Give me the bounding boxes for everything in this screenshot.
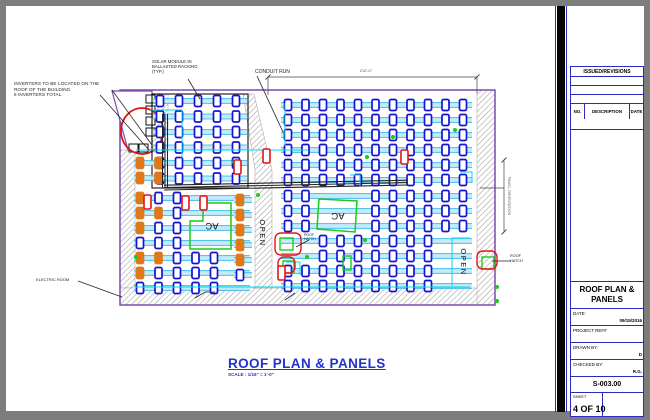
checked-by-row: CHECKED BY: R.G.	[571, 360, 643, 377]
drawn-by-value: D	[639, 352, 642, 357]
drawing-title: ROOF PLAN & PANELS	[228, 356, 398, 371]
open-area-label-2: OPEN	[458, 242, 468, 282]
project-ref-label: PROJECT REF#	[573, 328, 607, 333]
checked-by-label: CHECKED BY:	[573, 362, 603, 367]
sheet-fold-bar	[557, 6, 565, 412]
checked-by-value: R.G.	[633, 369, 642, 374]
col-no: NO.	[571, 104, 585, 119]
roof-hatch-label-right: ROOF HATCH	[510, 254, 523, 263]
sheet-count: 4 OF 10	[573, 404, 606, 414]
sheet-label: SHEET	[573, 394, 586, 399]
title-block: ISSUED/REVISIONS NO. DESCRIPTION DATE RO…	[570, 6, 644, 412]
ac-unit-label-2: AC	[323, 209, 353, 221]
revisions-header: ISSUED/REVISIONS	[571, 67, 643, 77]
open-area-label-1: OPEN	[257, 213, 267, 253]
drawn-by-row: DRAWN BY: D	[571, 343, 643, 360]
revisions-column-headers: NO. DESCRIPTION DATE	[571, 104, 643, 119]
revisions-table: ISSUED/REVISIONS NO. DESCRIPTION DATE	[570, 66, 644, 130]
col-date: DATE	[630, 104, 643, 119]
sheet-number: S-003.00	[571, 377, 643, 393]
drawing-scale: SCALE : 1/16" = 1'-0"	[228, 372, 398, 377]
ac-unit-label-1: AC	[197, 219, 227, 231]
title-block-spacer	[570, 130, 644, 281]
revision-row	[571, 86, 643, 95]
conduit-run-label: CONDUIT RUN	[255, 69, 290, 75]
col-description: DESCRIPTION	[585, 104, 630, 119]
revision-row	[571, 95, 643, 104]
right-dimension-text: PANEL ORIENTATION	[503, 166, 511, 226]
border-line	[566, 6, 567, 412]
date-label: DATE:	[573, 311, 586, 316]
sheet-number-row: S-003.00	[571, 377, 643, 393]
date-value: 09/15/2016	[619, 318, 642, 323]
drawn-by-label: DRAWN BY:	[573, 345, 598, 350]
roof-hatch-label-center: ROOF HATCH	[304, 233, 316, 241]
project-ref-row: PROJECT REF#	[571, 326, 643, 343]
electric-room-label: ELECTRIC ROOM	[36, 277, 69, 282]
sheet-count-row: SHEET 4 OF 10	[571, 393, 643, 416]
border-line	[555, 6, 556, 412]
screenshot-frame: INVERTERS TO BE LOCATED ON THE ROOF OF T…	[0, 0, 650, 420]
title-block-info: ROOF PLAN & PANELS DATE: 09/15/2016 PROJ…	[570, 281, 644, 417]
date-row: DATE: 09/15/2016	[571, 309, 643, 326]
sheet-title-line2: PANELS	[571, 295, 643, 305]
panel-arrays	[134, 96, 472, 294]
solar-module-note: SOLAR MODULE IN BALLASTED RACKING (TYP.)	[152, 59, 210, 75]
drawing-title-block: ROOF PLAN & PANELS SCALE : 1/16" = 1'-0"	[228, 356, 398, 377]
sheet-title-box: ROOF PLAN & PANELS	[571, 282, 643, 309]
inverters-note: INVERTERS TO BE LOCATED ON THE ROOF OF T…	[14, 81, 109, 98]
sheet-title-line1: ROOF PLAN &	[571, 285, 643, 295]
revision-row	[571, 77, 643, 86]
sheet-count-cell: SHEET 4 OF 10	[571, 393, 603, 416]
top-dimension-text: 210'-0"	[346, 68, 386, 73]
